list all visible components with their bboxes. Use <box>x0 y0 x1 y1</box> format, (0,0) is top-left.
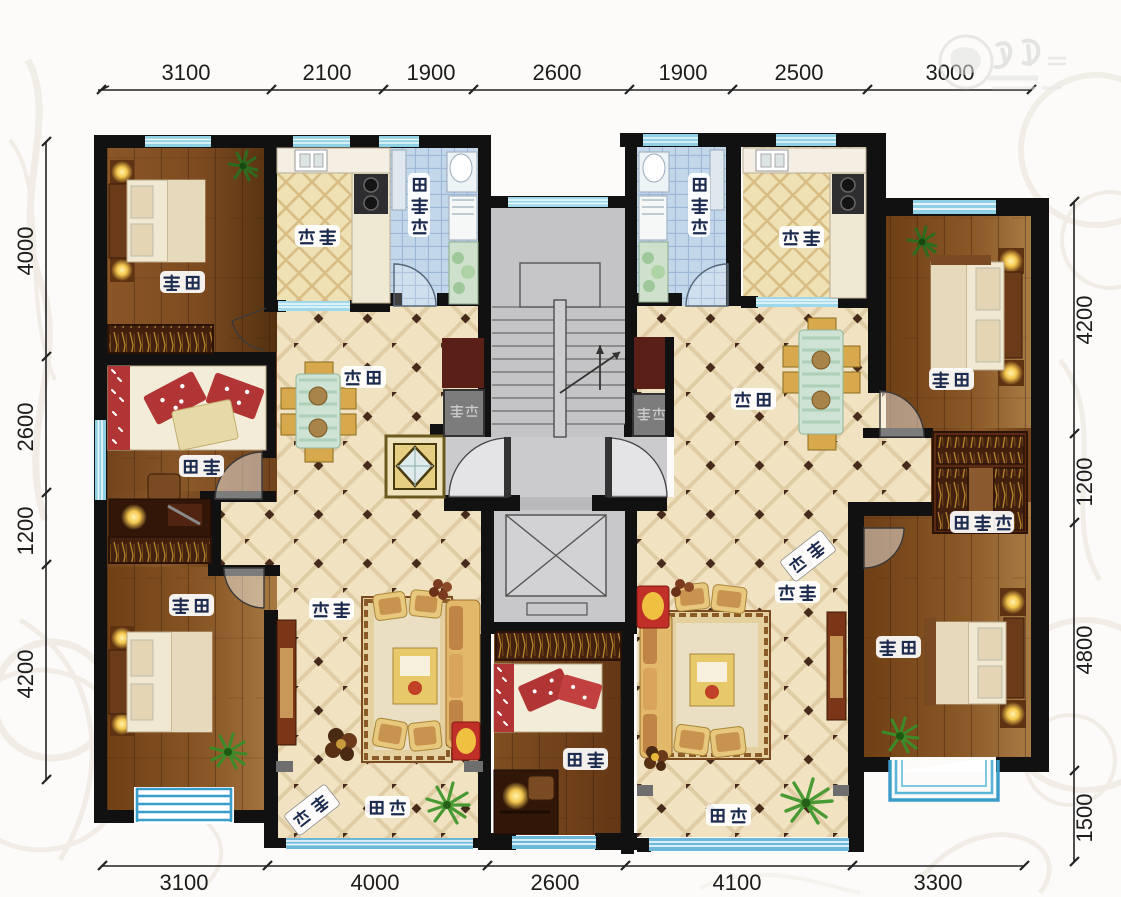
svg-text:2600: 2600 <box>531 870 580 895</box>
svg-text:3100: 3100 <box>162 60 211 85</box>
svg-text:2600: 2600 <box>533 60 582 85</box>
svg-text:3100: 3100 <box>160 870 209 895</box>
svg-text:4000: 4000 <box>13 227 38 276</box>
svg-text:1900: 1900 <box>659 60 708 85</box>
svg-text:2500: 2500 <box>775 60 824 85</box>
svg-text:2600: 2600 <box>13 403 38 452</box>
svg-text:4200: 4200 <box>1072 296 1097 345</box>
svg-text:4200: 4200 <box>13 650 38 699</box>
svg-text:4800: 4800 <box>1072 626 1097 675</box>
svg-text:4000: 4000 <box>351 870 400 895</box>
svg-text:1200: 1200 <box>1072 458 1097 507</box>
svg-text:2100: 2100 <box>303 60 352 85</box>
svg-text:4100: 4100 <box>713 870 762 895</box>
svg-text:1200: 1200 <box>13 507 38 556</box>
svg-text:1900: 1900 <box>407 60 456 85</box>
svg-text:1500: 1500 <box>1072 794 1097 843</box>
svg-text:3300: 3300 <box>914 870 963 895</box>
